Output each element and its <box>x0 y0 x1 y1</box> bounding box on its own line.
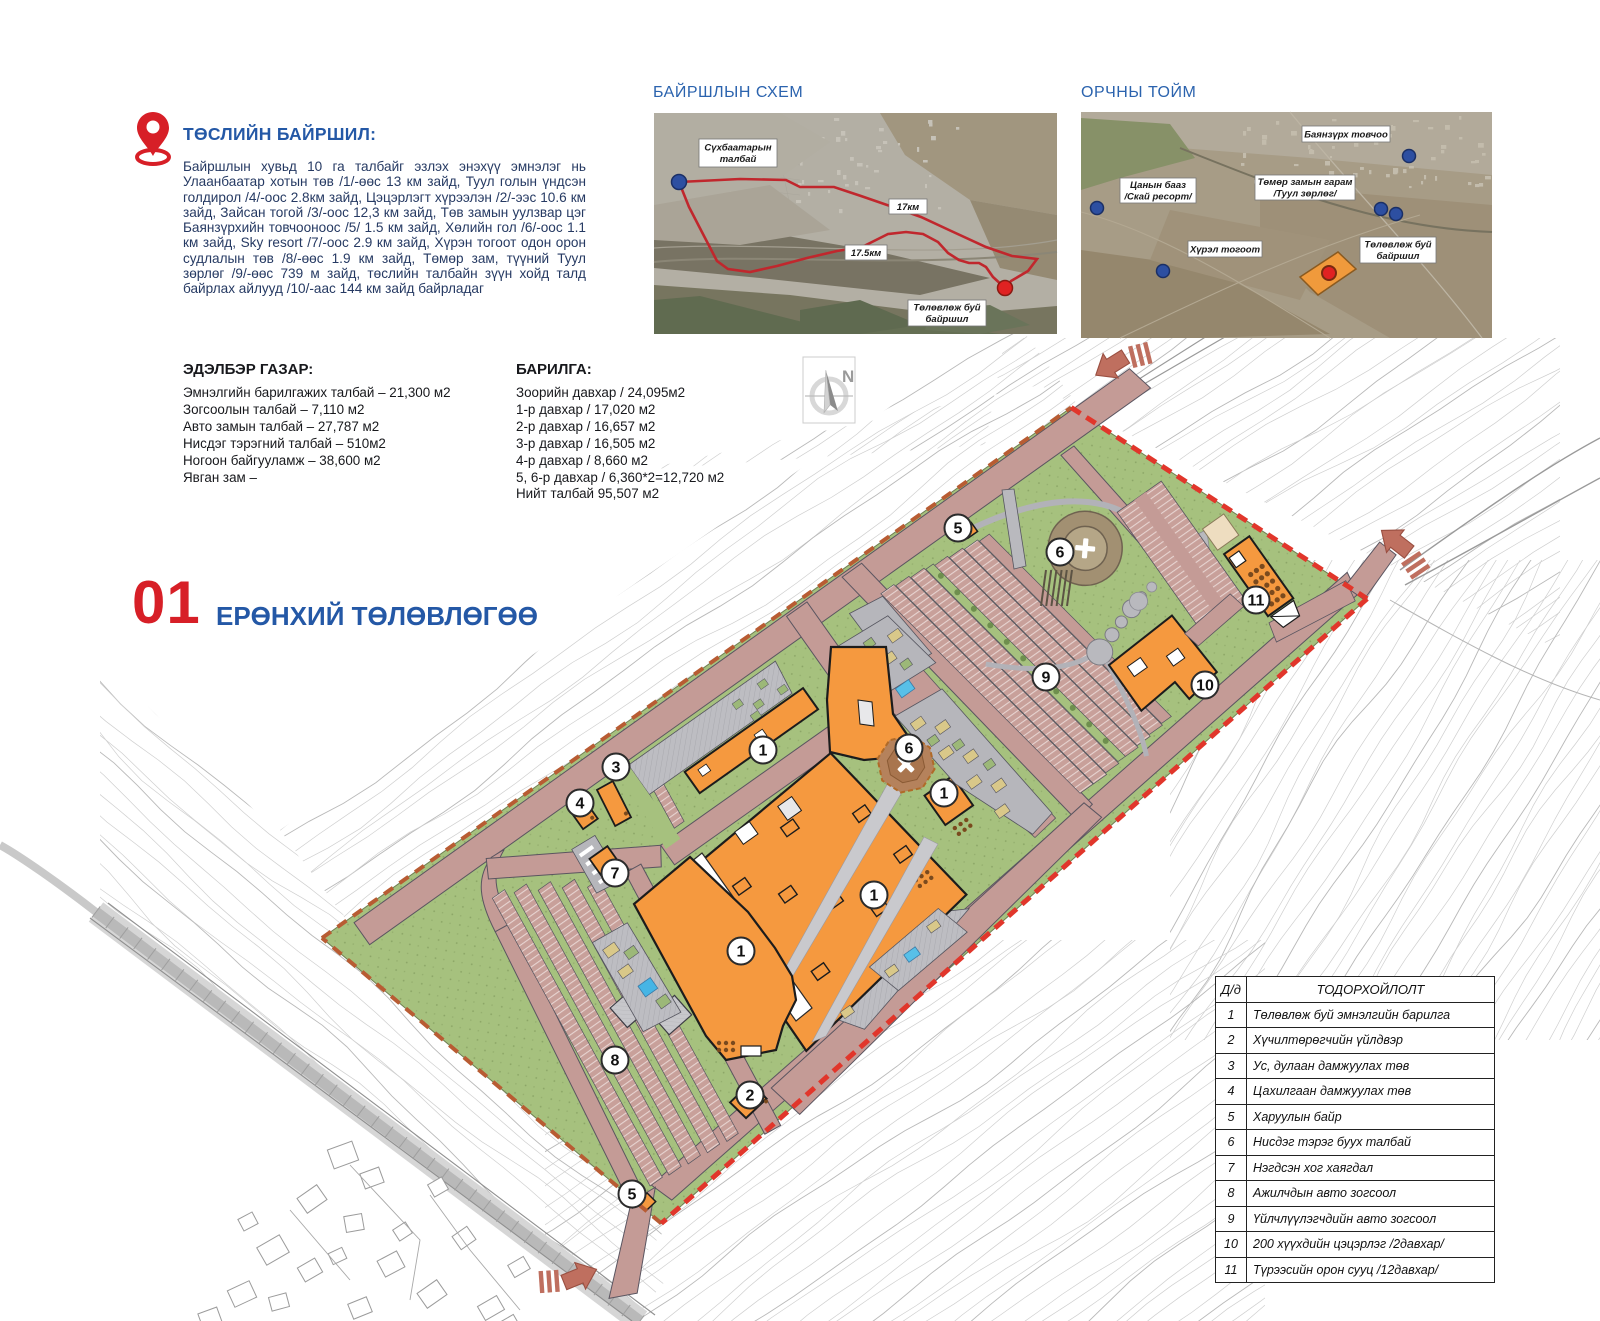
svg-text:Баянзүрх товчоо: Баянзүрх товчоо <box>1304 129 1388 140</box>
svg-text:9: 9 <box>1042 670 1051 687</box>
svg-text:17км: 17км <box>897 202 919 213</box>
svg-text:1: 1 <box>737 944 746 961</box>
svg-text:байршил: байршил <box>1377 251 1420 262</box>
svg-text:3: 3 <box>612 760 621 777</box>
svg-text:Цанын бааз: Цанын бааз <box>1130 180 1186 191</box>
svg-text:байршил: байршил <box>926 314 969 325</box>
svg-text:5: 5 <box>954 521 963 538</box>
svg-text:7: 7 <box>611 866 620 883</box>
svg-text:5: 5 <box>628 1187 637 1204</box>
svg-text:Хүрэл тогоот: Хүрэл тогоот <box>1189 244 1261 255</box>
svg-text:2: 2 <box>746 1088 755 1105</box>
svg-text:10: 10 <box>1196 678 1214 695</box>
svg-text:Төлөвлөж буй: Төлөвлөж буй <box>913 303 980 314</box>
svg-text:1: 1 <box>759 743 768 760</box>
svg-text:6: 6 <box>1056 545 1065 562</box>
svg-text:/Скай ресорт/: /Скай ресорт/ <box>1123 192 1193 203</box>
svg-text:/Туул зөрлөг/: /Туул зөрлөг/ <box>1272 189 1337 200</box>
svg-text:Төмөр замын гарам: Төмөр замын гарам <box>1258 177 1353 188</box>
svg-text:N: N <box>842 367 854 386</box>
svg-text:8: 8 <box>611 1053 620 1070</box>
svg-text:17.5км: 17.5км <box>851 248 881 259</box>
svg-text:1: 1 <box>940 786 949 803</box>
svg-text:4: 4 <box>576 796 585 813</box>
svg-text:11: 11 <box>1248 593 1265 610</box>
svg-text:6: 6 <box>905 741 914 758</box>
svg-text:1: 1 <box>870 888 879 905</box>
svg-text:Сүхбаатарын: Сүхбаатарын <box>704 143 771 154</box>
svg-text:Төлөвлөж буй: Төлөвлөж буй <box>1364 240 1431 251</box>
svg-text:талбай: талбай <box>720 154 757 165</box>
